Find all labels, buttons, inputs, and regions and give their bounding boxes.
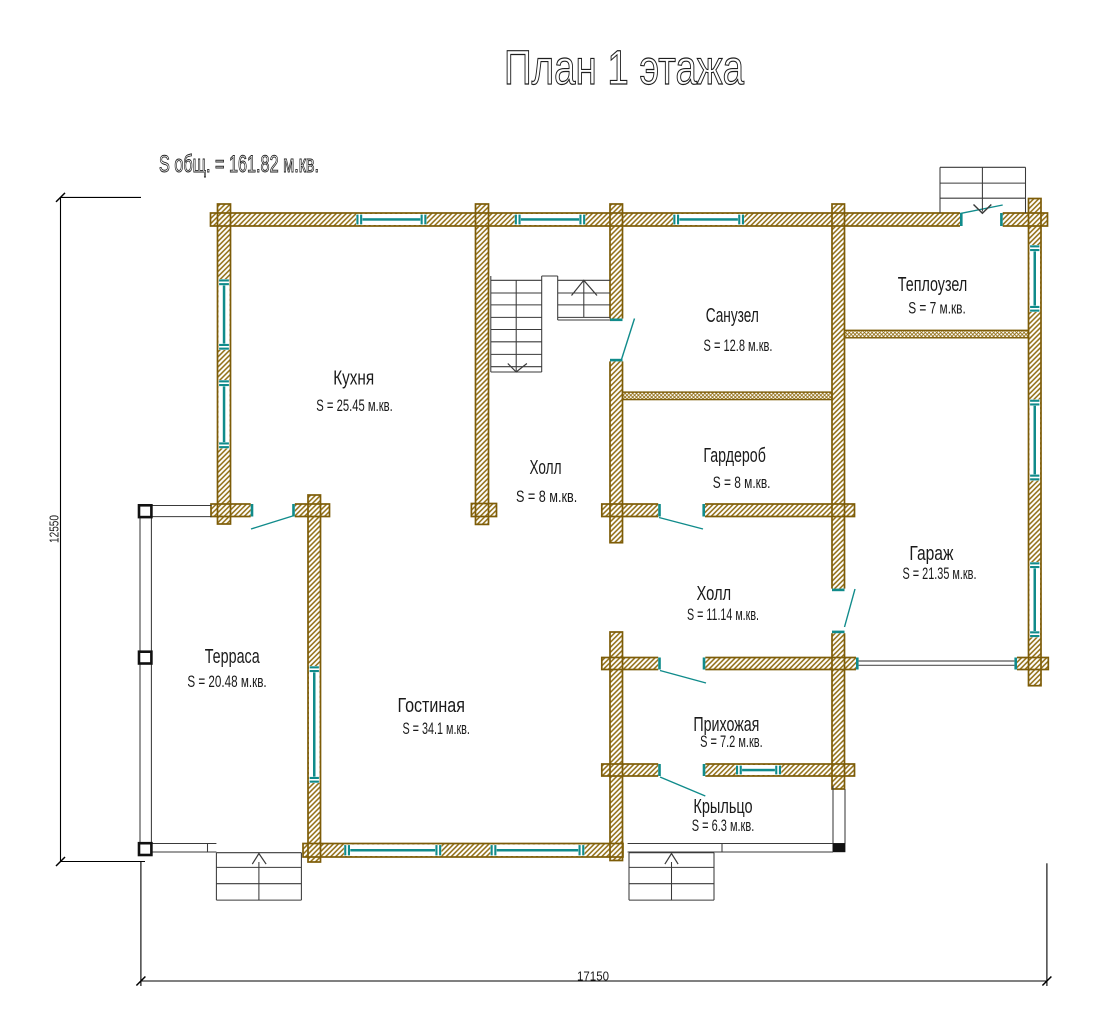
svg-text:S = 7 м.кв.: S = 7 м.кв. bbox=[908, 299, 966, 318]
svg-text:S = 11.14 м.кв.: S = 11.14 м.кв. bbox=[687, 605, 759, 624]
svg-text:S = 7.2 м.кв.: S = 7.2 м.кв. bbox=[700, 732, 763, 751]
svg-text:Терраса: Терраса bbox=[205, 646, 261, 668]
svg-text:S = 8 м.кв.: S = 8 м.кв. bbox=[516, 487, 577, 506]
svg-text:S = 6.3 м.кв.: S = 6.3 м.кв. bbox=[692, 816, 755, 835]
svg-text:Холл: Холл bbox=[530, 457, 562, 479]
svg-text:12550: 12550 bbox=[46, 515, 61, 543]
svg-text:S = 8 м.кв.: S = 8 м.кв. bbox=[713, 473, 771, 492]
svg-text:Гардероб: Гардероб bbox=[703, 445, 766, 467]
svg-text:S = 12.8 м.кв.: S = 12.8 м.кв. bbox=[704, 336, 773, 355]
svg-text:S = 21.35 м.кв.: S = 21.35 м.кв. bbox=[903, 564, 977, 583]
svg-text:S = 20.48 м.кв.: S = 20.48 м.кв. bbox=[187, 672, 266, 691]
svg-text:Холл: Холл bbox=[696, 583, 731, 605]
svg-text:S общ. = 161.82 м.кв.: S общ. = 161.82 м.кв. bbox=[159, 151, 319, 178]
svg-text:Кухня: Кухня bbox=[333, 368, 374, 390]
svg-text:Теплоузел: Теплоузел bbox=[898, 274, 967, 296]
svg-text:Санузел: Санузел bbox=[706, 305, 759, 327]
svg-text:Гараж: Гараж bbox=[909, 543, 953, 565]
svg-text:Крыльцо: Крыльцо bbox=[693, 796, 752, 818]
svg-text:17150: 17150 bbox=[577, 968, 609, 983]
svg-text:S = 34.1 м.кв.: S = 34.1 м.кв. bbox=[402, 719, 470, 738]
svg-text:S = 25.45 м.кв.: S = 25.45 м.кв. bbox=[316, 396, 393, 415]
svg-text:Гостиная: Гостиная bbox=[397, 695, 465, 717]
svg-text:План 1 этажа: План 1 этажа bbox=[504, 42, 744, 95]
